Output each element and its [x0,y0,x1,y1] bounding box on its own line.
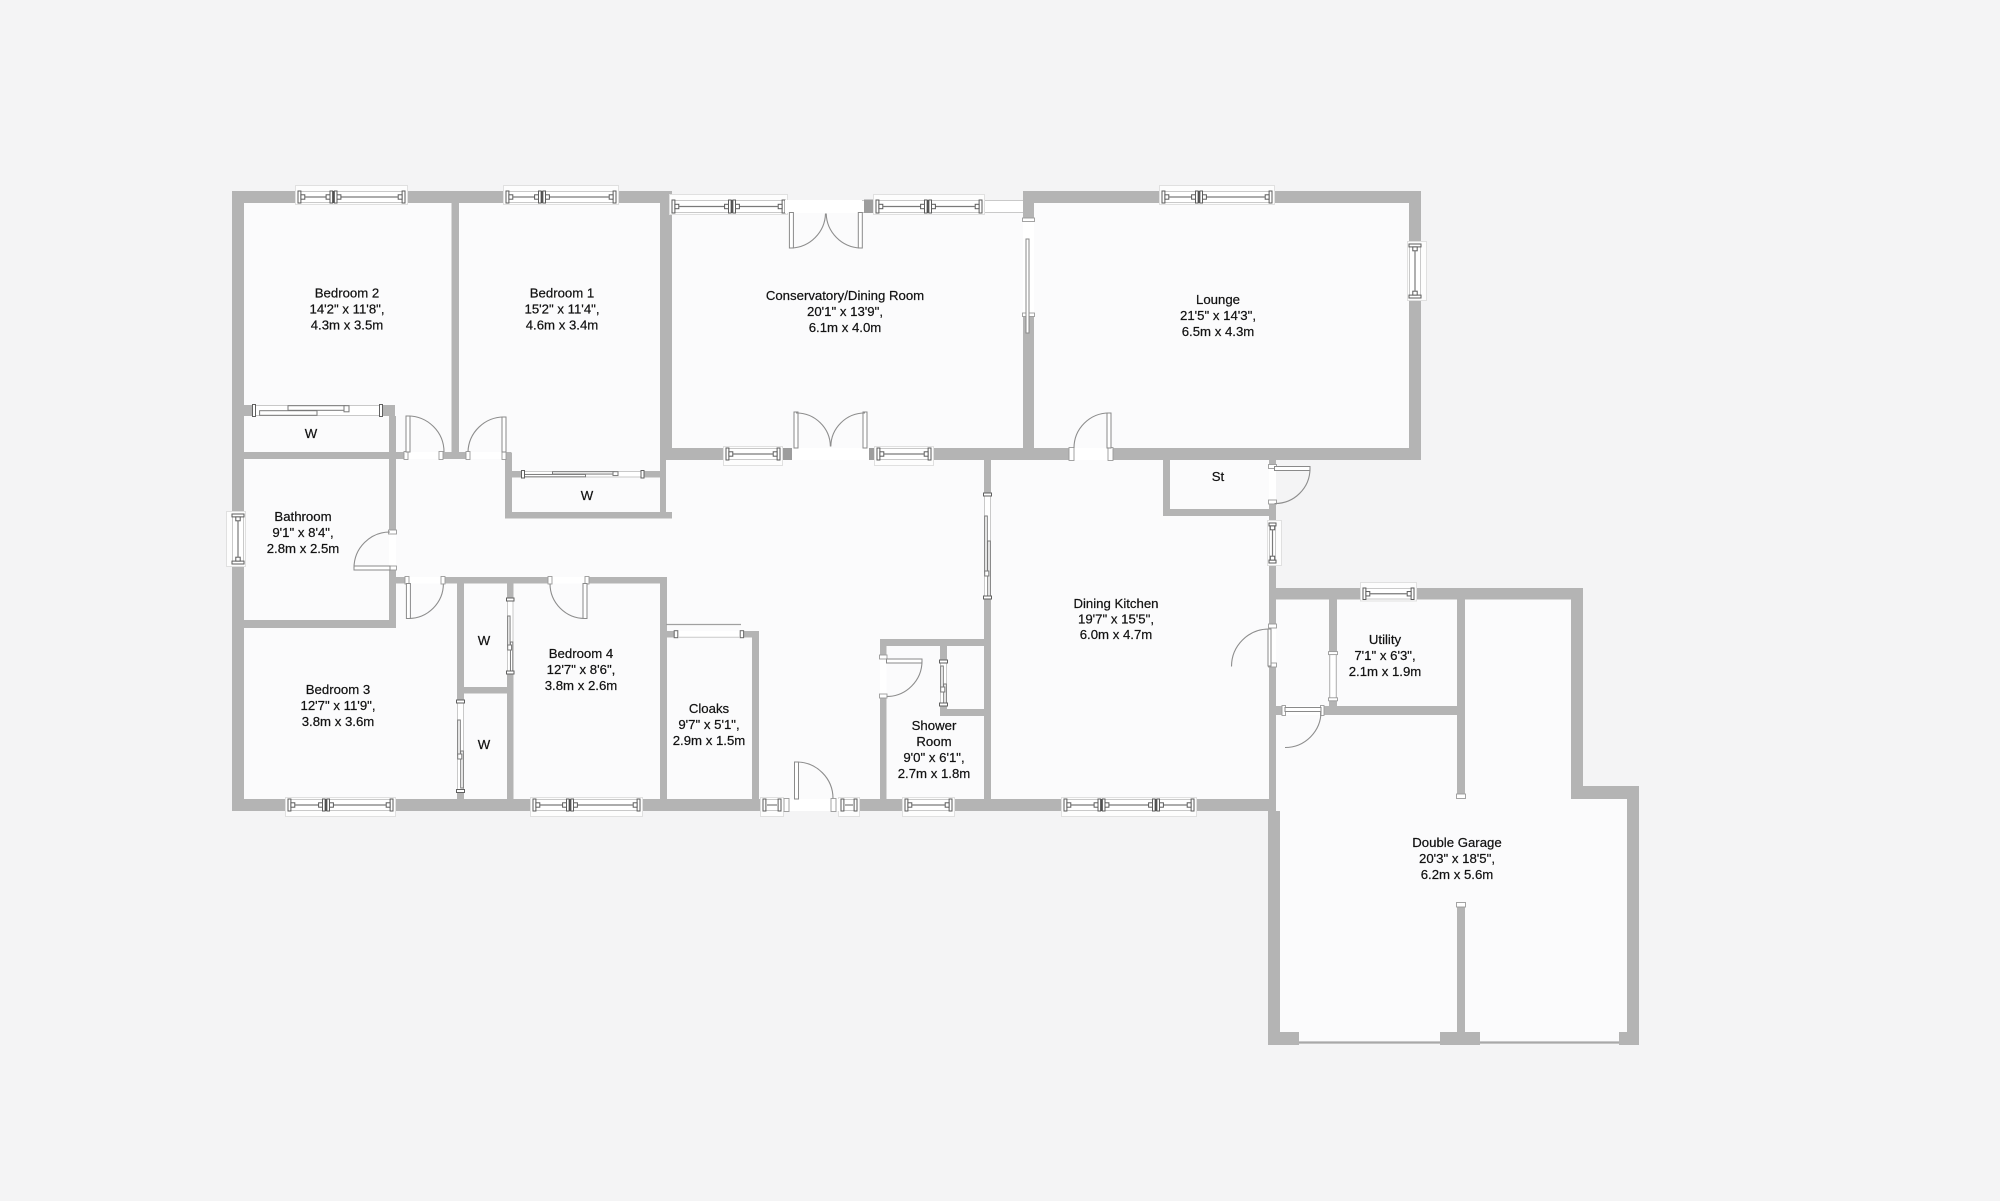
svg-text:W: W [478,633,491,648]
svg-text:6.5m x 4.3m: 6.5m x 4.3m [1182,324,1255,339]
svg-text:Bathroom: Bathroom [274,509,331,524]
svg-text:Lounge: Lounge [1196,292,1240,307]
svg-text:Dining Kitchen: Dining Kitchen [1073,596,1158,611]
svg-text:21'5" x 14'3",: 21'5" x 14'3", [1180,308,1256,323]
svg-text:Room: Room [916,734,951,749]
svg-text:20'3" x 18'5",: 20'3" x 18'5", [1419,851,1495,866]
svg-text:12'7" x 11'9",: 12'7" x 11'9", [300,698,375,713]
svg-text:12'7" x 8'6",: 12'7" x 8'6", [547,662,616,677]
svg-text:Conservatory/Dining Room: Conservatory/Dining Room [766,288,924,303]
svg-text:14'2" x 11'8",: 14'2" x 11'8", [309,302,384,317]
svg-text:4.6m x 3.4m: 4.6m x 3.4m [526,318,599,333]
svg-text:15'2" x 11'4",: 15'2" x 11'4", [524,302,599,317]
svg-text:Bedroom 1: Bedroom 1 [530,286,595,301]
svg-text:Bedroom 4: Bedroom 4 [549,646,614,661]
svg-text:20'1" x 13'9",: 20'1" x 13'9", [807,304,883,319]
svg-text:9'1" x 8'4",: 9'1" x 8'4", [272,525,333,540]
svg-text:6.1m x 4.0m: 6.1m x 4.0m [809,320,882,335]
svg-text:Cloaks: Cloaks [689,701,730,716]
svg-text:9'0" x 6'1",: 9'0" x 6'1", [903,750,964,765]
svg-text:Double Garage: Double Garage [1412,835,1501,850]
svg-text:19'7" x 15'5",: 19'7" x 15'5", [1078,612,1154,627]
svg-text:W: W [305,426,318,441]
svg-text:W: W [478,737,491,752]
svg-text:W: W [581,488,594,503]
svg-text:Bedroom 3: Bedroom 3 [306,682,371,697]
svg-text:4.3m x 3.5m: 4.3m x 3.5m [311,318,384,333]
svg-text:St: St [1212,469,1225,484]
svg-text:2.8m x 2.5m: 2.8m x 2.5m [267,541,340,556]
svg-text:3.8m x 3.6m: 3.8m x 3.6m [302,714,375,729]
svg-text:Bedroom 2: Bedroom 2 [315,286,380,301]
svg-text:Utility: Utility [1369,632,1402,647]
svg-text:2.1m x 1.9m: 2.1m x 1.9m [1349,664,1422,679]
svg-text:2.9m x 1.5m: 2.9m x 1.5m [673,733,746,748]
svg-text:7'1" x 6'3",: 7'1" x 6'3", [1354,648,1415,663]
svg-text:6.0m x 4.7m: 6.0m x 4.7m [1080,627,1153,642]
svg-text:Shower: Shower [912,718,957,733]
svg-text:3.8m x 2.6m: 3.8m x 2.6m [545,678,618,693]
svg-text:6.2m x 5.6m: 6.2m x 5.6m [1421,867,1494,882]
svg-text:2.7m x 1.8m: 2.7m x 1.8m [898,766,971,781]
svg-text:9'7" x 5'1",: 9'7" x 5'1", [678,717,739,732]
